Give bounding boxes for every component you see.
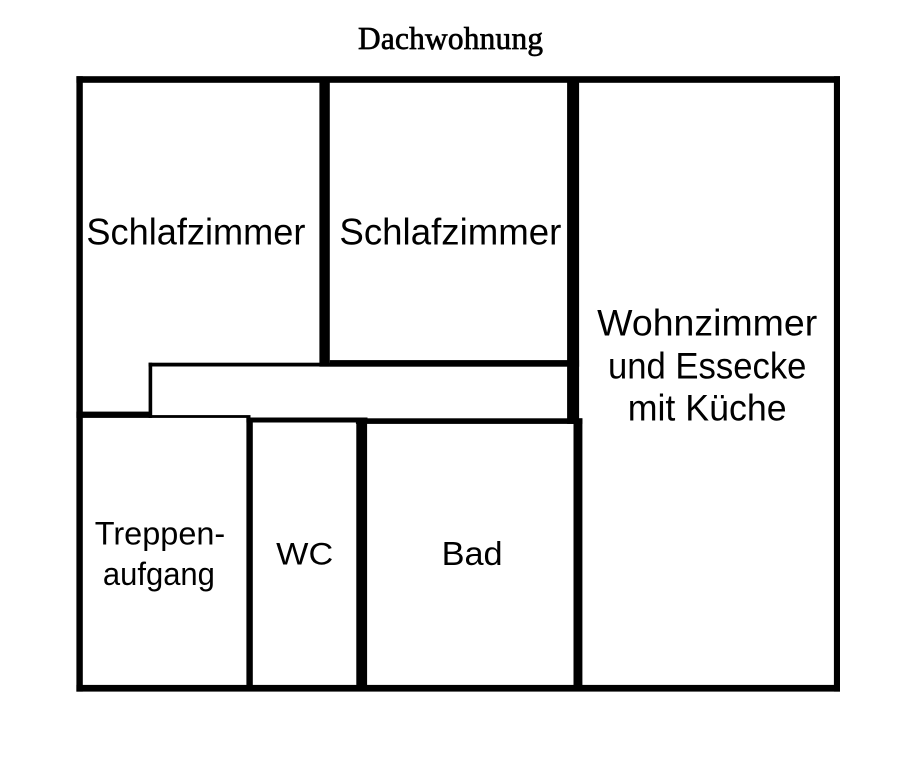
svg-text:und Essecke: und Essecke xyxy=(608,345,807,387)
svg-text:mit Küche: mit Küche xyxy=(628,387,787,429)
svg-text:Schlafzimmer: Schlafzimmer xyxy=(339,210,561,252)
svg-text:Wohnzimmer: Wohnzimmer xyxy=(597,302,817,344)
svg-text:aufgang: aufgang xyxy=(103,556,215,592)
svg-text:Treppen-: Treppen- xyxy=(95,515,226,551)
svg-text:WC: WC xyxy=(276,536,333,572)
svg-text:Dachwohnung: Dachwohnung xyxy=(358,21,543,56)
svg-text:Bad: Bad xyxy=(442,535,503,572)
svg-text:Schlafzimmer: Schlafzimmer xyxy=(86,210,305,252)
